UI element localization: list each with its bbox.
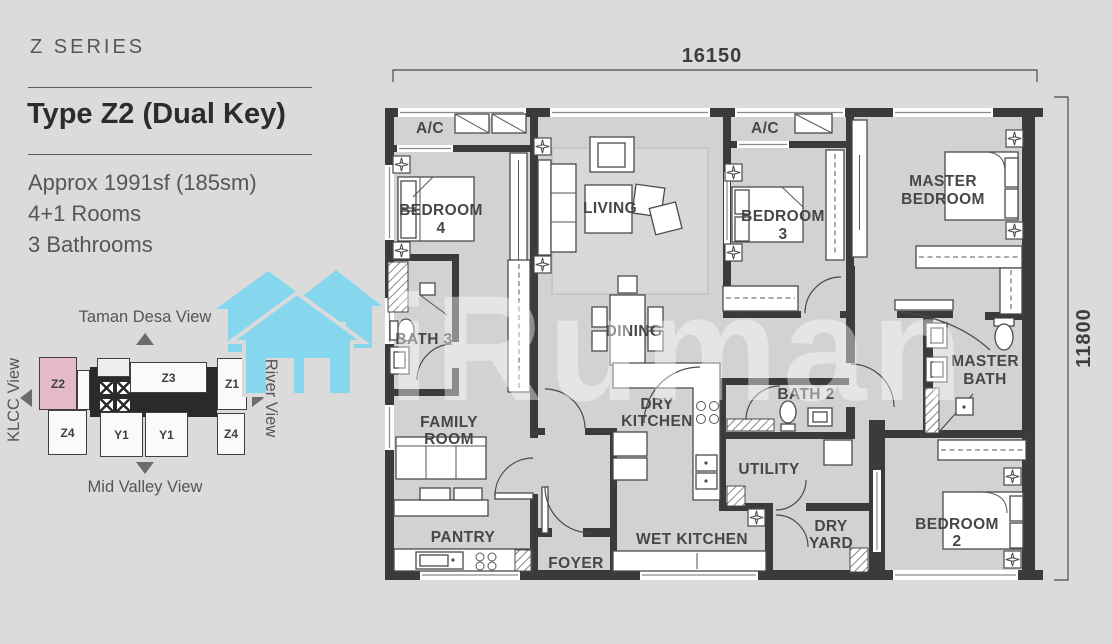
room-label-wet-kitchen: WET KITCHEN [636, 531, 748, 548]
room-label-master-bath: BATH [963, 371, 1007, 388]
sofa [538, 160, 551, 255]
room-label-bedroom3: 3 [778, 226, 787, 243]
toilet [995, 324, 1013, 350]
room-label-bedroom2: BEDROOM [915, 516, 999, 533]
tv-console [394, 500, 488, 516]
room-label-pantry: PANTRY [431, 529, 496, 546]
house-icon [216, 270, 382, 395]
room-label-ac-right: A/C [751, 120, 779, 137]
dimension-height: 11800 [1073, 308, 1095, 368]
view-label-river: River View [260, 338, 280, 458]
floor-plan-drawing: A/C A/C BEDROOM 4 LIVING BEDROOM 3 MASTE… [0, 0, 1112, 644]
watermark-text: iRuman [388, 264, 968, 432]
room-label-family-room: ROOM [424, 431, 474, 448]
room-label-utility: UTILITY [738, 461, 800, 478]
room-label-ac-left: A/C [416, 120, 444, 137]
room-label-living: LIVING [583, 200, 637, 217]
room-label-dry-yard: YARD [809, 535, 853, 552]
family-room-furniture [394, 437, 488, 516]
fridge [613, 432, 647, 456]
room-label-master-bedroom: BEDROOM [901, 191, 985, 208]
room-label-bedroom4: BEDROOM [399, 202, 483, 219]
room-label-bedroom4: 4 [436, 220, 445, 237]
pouf [649, 202, 682, 235]
room-label-bedroom3: BEDROOM [741, 208, 825, 225]
door-leaf-family [495, 493, 533, 499]
room-label-foyer: FOYER [548, 555, 603, 572]
washer [727, 486, 745, 506]
pantry-fixtures [394, 549, 532, 571]
room-label-bedroom2: 2 [952, 533, 961, 550]
room-label-dry-yard: DRY [814, 518, 848, 535]
dimension-width: 16150 [682, 45, 743, 67]
counter [613, 551, 766, 571]
room-label-master-bedroom: MASTER [909, 173, 977, 190]
floor-plan-page: Z SERIES Type Z2 (Dual Key) Approx 1991s… [0, 0, 1112, 644]
watermark: iRuman [216, 264, 968, 432]
